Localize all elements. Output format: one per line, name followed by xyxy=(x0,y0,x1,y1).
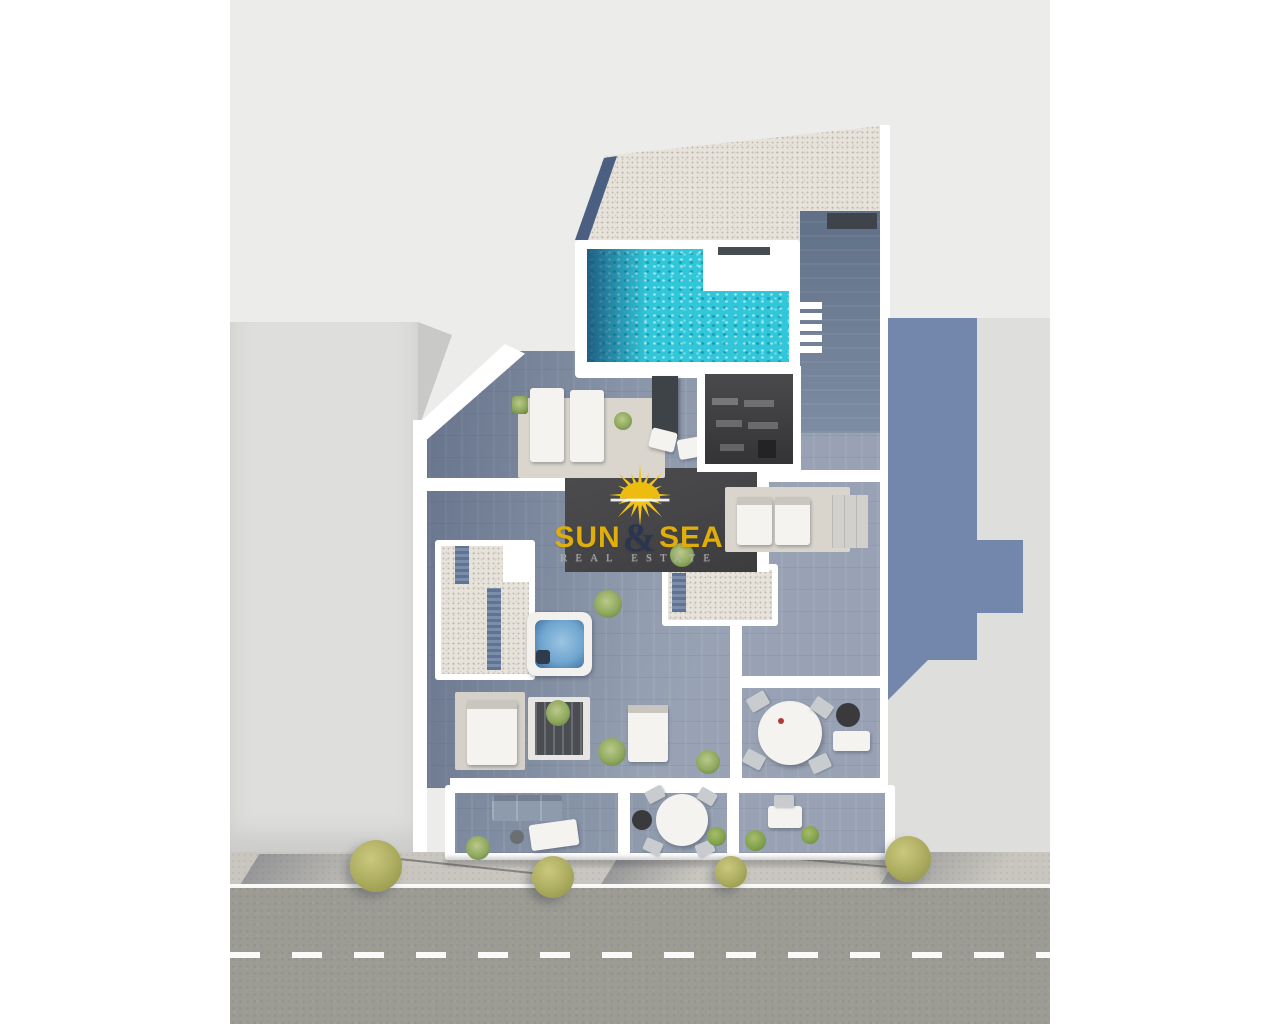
road-edge-line xyxy=(230,884,1050,888)
aerial-floorplan-render: SUN&SEA REAL ESTATE xyxy=(0,0,1280,1024)
table-setting xyxy=(778,718,784,724)
interior-wall xyxy=(742,676,888,688)
balcony-bush xyxy=(801,826,819,844)
street-tree xyxy=(885,836,931,882)
sun-lounger xyxy=(570,390,604,462)
sun-lounger xyxy=(530,388,564,462)
dining-table-round xyxy=(656,794,708,846)
street-tree xyxy=(350,840,402,892)
bed xyxy=(628,705,668,762)
bed-headboard xyxy=(775,497,810,505)
potted-plant xyxy=(466,836,490,860)
balcony-bush xyxy=(707,827,726,846)
potted-plant xyxy=(598,738,626,766)
corridor-door xyxy=(827,213,877,229)
logo-tagline: REAL ESTATE xyxy=(533,552,745,564)
balustrade-louver xyxy=(455,546,469,584)
balcony-wall xyxy=(618,793,630,853)
pool-platform-vent xyxy=(718,247,770,255)
desk xyxy=(768,806,802,828)
stair-flight xyxy=(748,422,778,429)
stairwell-landing xyxy=(758,440,776,458)
stair-flight xyxy=(744,400,774,407)
stairwell-void xyxy=(705,374,793,464)
balustrade-louver xyxy=(487,588,501,670)
logo-word-sun: SUN xyxy=(554,521,620,554)
balcony-wall xyxy=(727,793,739,853)
balcony-ground-shadow xyxy=(445,857,900,866)
potted-plant xyxy=(696,750,720,774)
stair-flight xyxy=(716,420,742,427)
side-table-dark xyxy=(836,703,860,727)
render-backdrop: SUN&SEA REAL ESTATE xyxy=(230,0,1050,1024)
console-desk xyxy=(833,731,870,751)
stair-flight xyxy=(712,398,738,405)
bed-headboard xyxy=(628,705,668,713)
neighbor-building-left xyxy=(230,322,418,852)
potted-plant xyxy=(594,590,622,618)
jacuzzi-seat xyxy=(536,650,550,664)
coffee-table xyxy=(510,830,524,844)
wardrobe xyxy=(832,495,868,548)
road-center-dashed-line xyxy=(230,952,1050,958)
balcony-bush xyxy=(745,830,766,851)
bed-headboard xyxy=(467,700,517,709)
side-table-dark xyxy=(632,810,652,830)
potted-plant xyxy=(614,412,632,430)
watermark-logo: SUN&SEA REAL ESTATE xyxy=(533,455,745,570)
sofa xyxy=(492,795,562,821)
tree-shadow xyxy=(241,854,450,884)
desk-chair xyxy=(774,795,794,807)
bed xyxy=(467,700,517,765)
potted-plant xyxy=(546,700,570,726)
street-tree xyxy=(715,856,747,888)
logo-word-sea: SEA xyxy=(659,521,724,554)
stair-flight xyxy=(720,444,744,451)
upper-corridor-deck xyxy=(800,211,888,433)
street-tree xyxy=(532,856,574,898)
potted-plant xyxy=(512,396,528,414)
balustrade-louver xyxy=(672,573,686,612)
